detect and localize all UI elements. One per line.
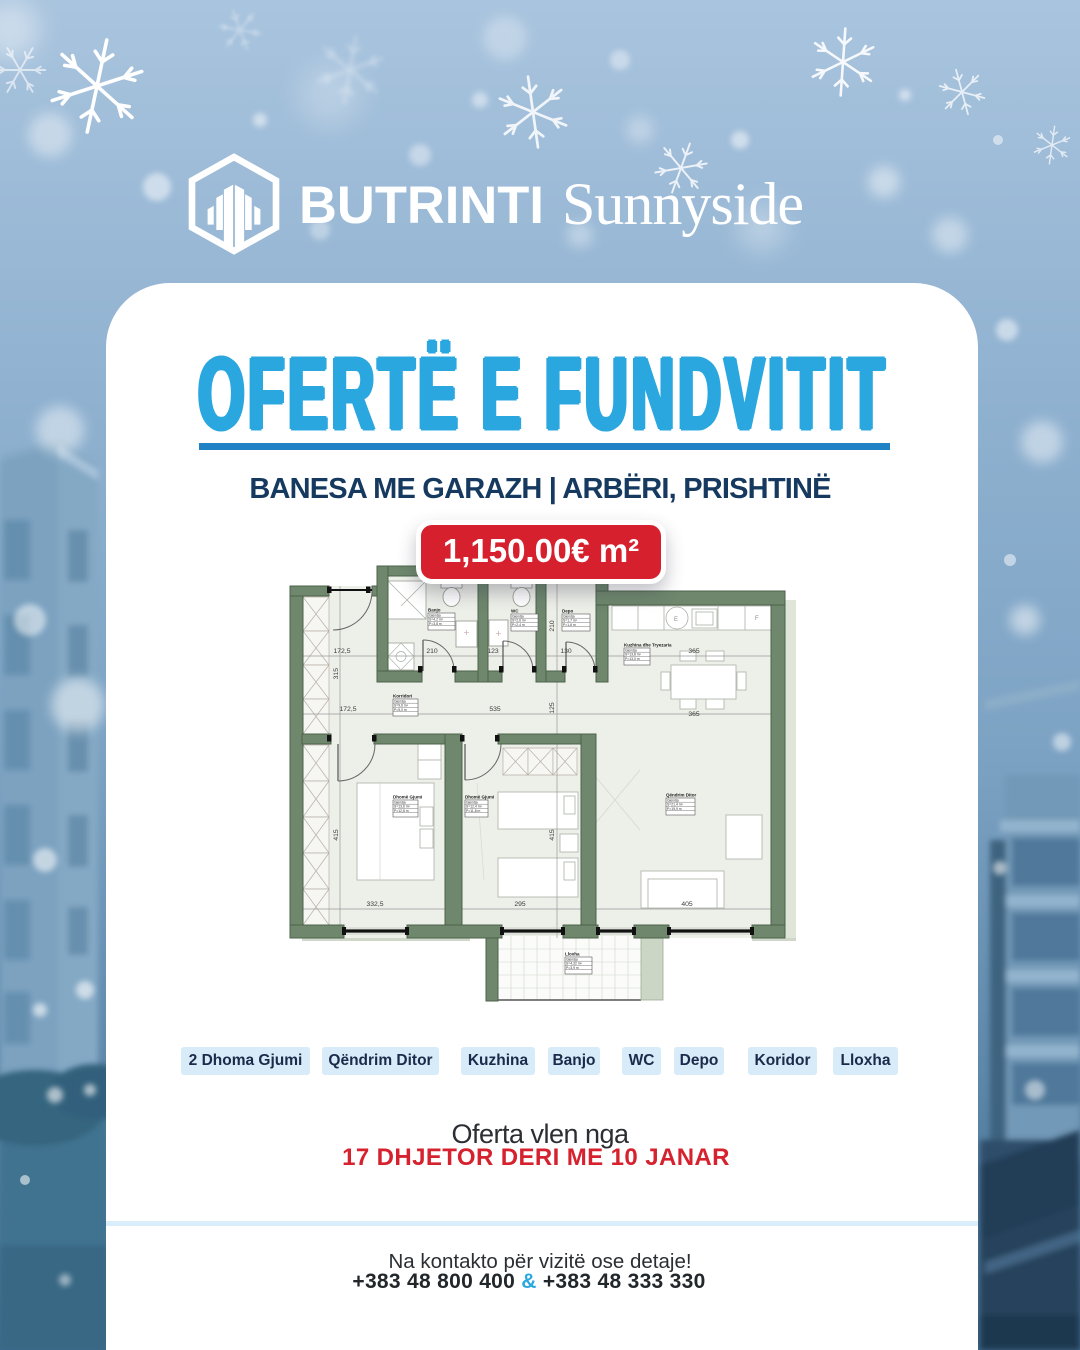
svg-text:Depo: Depo: [562, 609, 574, 614]
svg-text:Qëndrim Ditor: Qëndrim Ditor: [666, 793, 697, 798]
svg-text:P=13,0 m: P=13,0 m: [625, 657, 640, 661]
svg-text:P=11,8 m: P=11,8 m: [466, 809, 481, 813]
svg-text:Lloxha: Lloxha: [565, 952, 580, 957]
svg-text:415: 415: [333, 829, 340, 841]
svg-text:535: 535: [489, 706, 501, 713]
svg-text:210: 210: [549, 620, 556, 632]
svg-text:415: 415: [549, 829, 556, 841]
svg-text:Kuzhina dhe Tryezaria: Kuzhina dhe Tryezaria: [624, 643, 672, 648]
svg-text:P=2,4 m: P=2,4 m: [512, 623, 525, 627]
svg-text:295: 295: [514, 901, 526, 908]
svg-text:P=3,9 m: P=3,9 m: [566, 966, 579, 970]
svg-text:405: 405: [681, 901, 693, 908]
svg-text:F: F: [755, 616, 759, 622]
svg-text:365: 365: [688, 648, 700, 655]
svg-text:Dhomë Gjumi: Dhomë Gjumi: [393, 795, 422, 800]
svg-text:365: 365: [688, 711, 700, 718]
svg-text:125: 125: [549, 702, 556, 714]
svg-text:Banjo: Banjo: [428, 608, 441, 613]
svg-text:210: 210: [426, 648, 438, 655]
svg-text:P=12,8 m: P=12,8 m: [394, 809, 409, 813]
svg-text:WC: WC: [511, 609, 519, 614]
svg-text:P=19,9 m: P=19,9 m: [667, 807, 682, 811]
svg-text:172,5: 172,5: [333, 648, 350, 655]
svg-text:172,5: 172,5: [339, 706, 356, 713]
svg-text:P=3,8 m: P=3,8 m: [429, 622, 442, 626]
svg-text:Korridori: Korridori: [393, 694, 412, 699]
svg-text:Dhomë Gjumi: Dhomë Gjumi: [465, 795, 494, 800]
svg-text:P=1,6 m: P=1,6 m: [563, 623, 576, 627]
svg-text:123: 123: [487, 648, 499, 655]
svg-text:E: E: [674, 617, 678, 623]
svg-text:332,5: 332,5: [366, 901, 383, 908]
svg-text:P=9,0 m: P=9,0 m: [394, 708, 407, 712]
svg-text:315: 315: [333, 668, 340, 680]
